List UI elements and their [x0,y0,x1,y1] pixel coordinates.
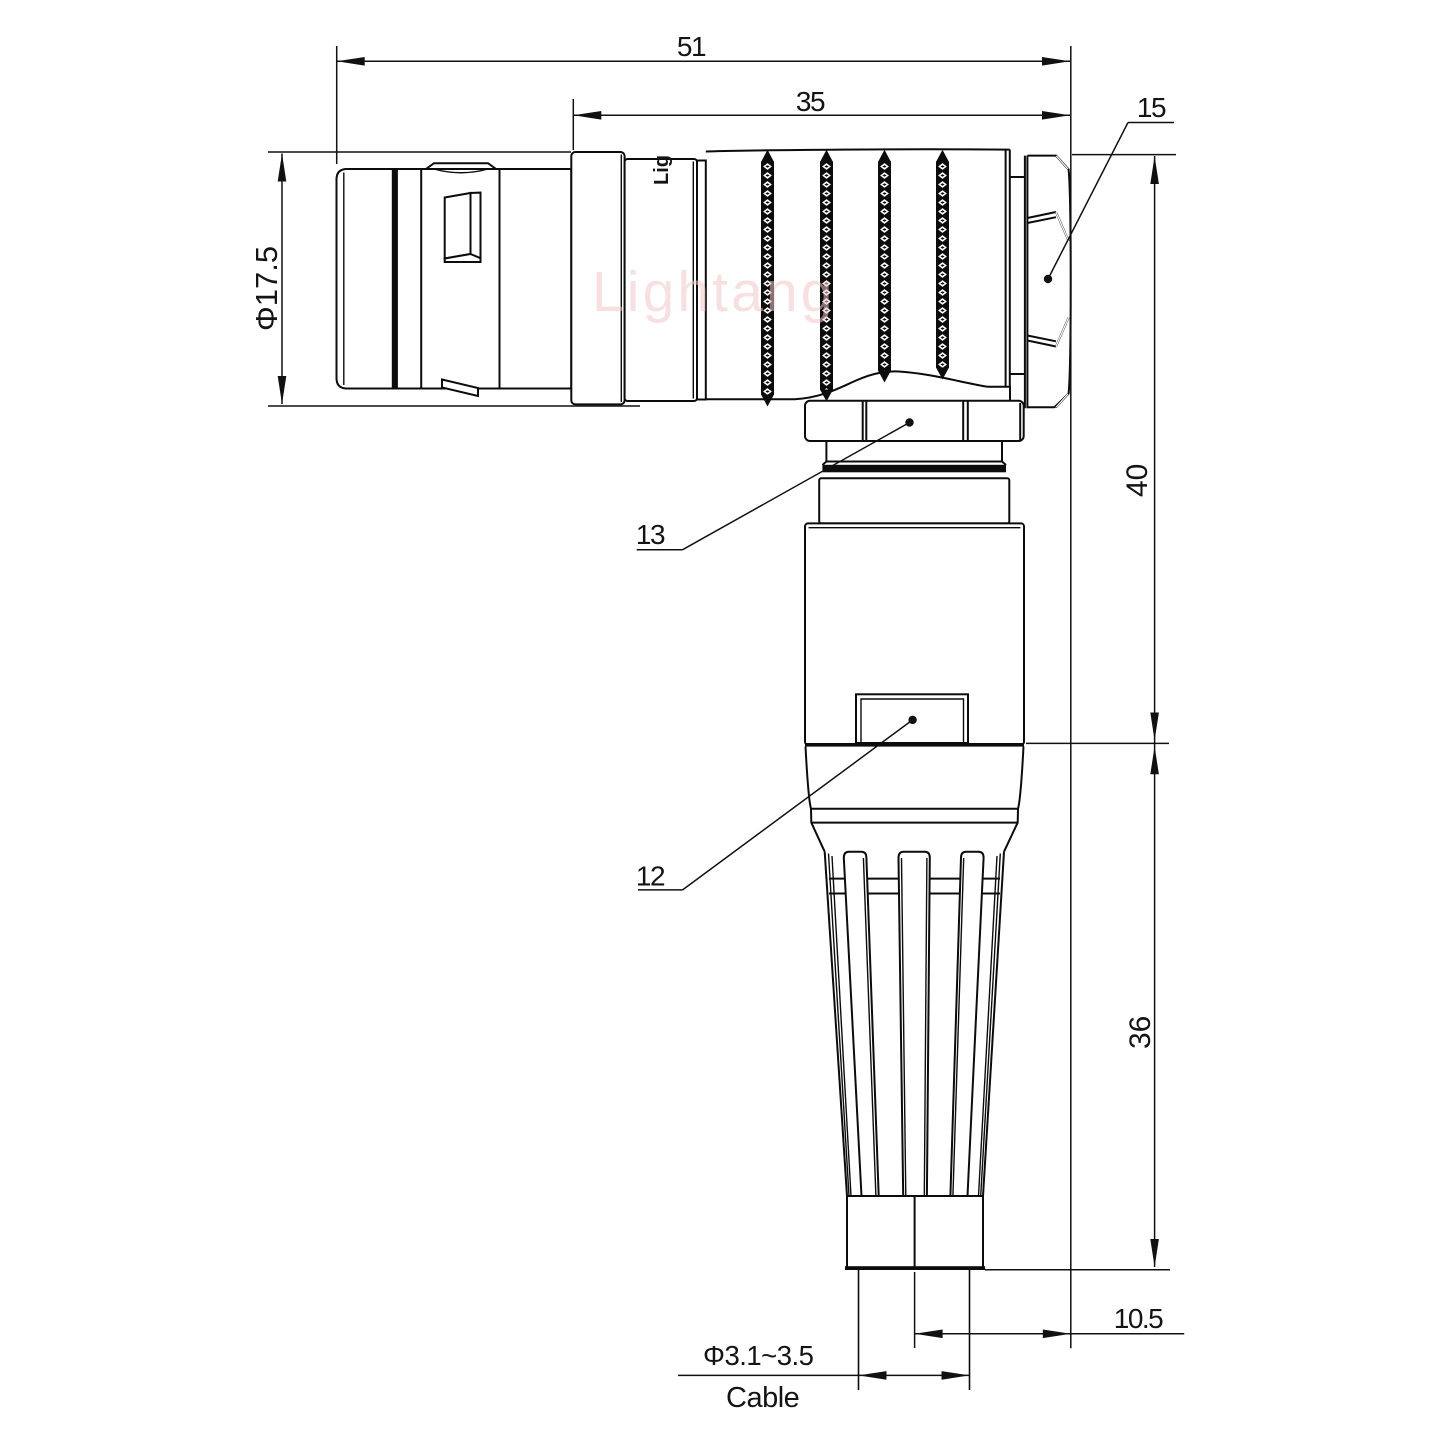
svg-text:36: 36 [1124,1016,1157,1049]
svg-text:Φ17.5: Φ17.5 [249,246,284,331]
svg-text:40: 40 [1121,464,1154,497]
svg-text:13: 13 [636,519,665,550]
svg-text:15: 15 [1137,92,1166,123]
svg-text:Φ3.1~3.5: Φ3.1~3.5 [703,1340,814,1371]
svg-text:10.5: 10.5 [1114,1303,1163,1334]
svg-text:Cable: Cable [726,1382,799,1414]
svg-text:12: 12 [636,861,665,892]
svg-text:51: 51 [677,31,706,62]
svg-text:35: 35 [796,86,825,117]
svg-text:Lightang: Lightang [592,260,836,324]
svg-text:Lig: Lig [651,155,673,185]
